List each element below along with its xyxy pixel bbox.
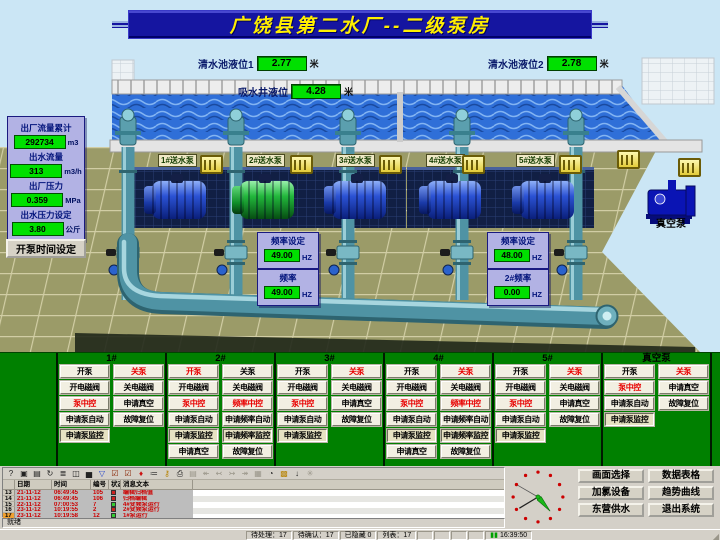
tank2-level-unit: 米 — [600, 57, 609, 70]
control-column-1#: 1#开泵关泵开电磁阀关电磁阀泵中控申请真空申请泵自动故障复位申请泵监控 — [56, 353, 165, 467]
meter-icon — [617, 150, 640, 169]
control-column-2#: 2#开泵关泵开电磁阀关电磁阀泵中控频率中控申请泵自动申请频率自动申请泵监控申请频… — [165, 353, 274, 467]
frame-icon[interactable]: ▦ — [252, 469, 264, 479]
list-icon[interactable]: ≣ — [57, 469, 69, 479]
alarm-table-header: 日期时间编号状态消息文本 — [3, 480, 504, 490]
control-column-3#: 3#开泵关泵开电磁阀关电磁阀泵中控申请真空申请泵自动故障复位申请泵监控 — [274, 353, 383, 467]
control-button-1#-申请真空[interactable]: 申请真空 — [114, 397, 163, 410]
title-text: 广饶县第二水厂--二级泵房 — [230, 11, 491, 38]
control-button-1#-关泵[interactable]: 关泵 — [114, 365, 163, 378]
control-button-2#-开电磁阀[interactable]: 开电磁阀 — [169, 381, 218, 394]
time-icon[interactable]: ◔ — [265, 469, 277, 479]
frequency-panel: 频率设定49.00HZ — [257, 232, 319, 269]
nav-button-退出系统[interactable]: 退出系统 — [648, 503, 714, 517]
nav-button-数据表格[interactable]: 数据表格 — [648, 469, 714, 483]
sort-icon[interactable]: ↓ — [291, 469, 303, 479]
control-column-header: 4# — [385, 353, 492, 365]
control-button-1#-关电磁阀[interactable]: 关电磁阀 — [114, 381, 163, 394]
control-button-5#-关泵[interactable]: 关泵 — [550, 365, 599, 378]
refresh-icon[interactable]: ↻ — [44, 469, 56, 479]
control-column-4#: 4#开泵关泵开电磁阀关电磁阀泵中控频率中控申请泵自动申请频率自动申请泵监控申请频… — [383, 353, 492, 467]
frequency-unit: HZ — [302, 290, 312, 299]
control-button-真空泵-申请真空[interactable]: 申请真空 — [659, 381, 708, 394]
control-column-header: 3# — [276, 353, 383, 365]
control-column-真空泵: 真空泵开泵关泵泵中控申请真空申请泵自动故障复位申请泵监控 — [601, 353, 712, 467]
chart-icon[interactable]: ▅ — [83, 469, 95, 479]
control-button-真空泵-关泵[interactable]: 关泵 — [659, 365, 708, 378]
alarm-toolbar: ?▣▤↻≣◫▅▽☑☑♦≔⚷⎙▤↞↢↣↠▦◔▩↓✳ — [3, 468, 504, 480]
pump-label-5: 5#送水泵 — [516, 154, 555, 167]
meter-icon — [678, 158, 701, 177]
control-button-3#-故障复位[interactable]: 故障复位 — [332, 413, 381, 426]
metric-label: 出厂流量累计 — [8, 122, 84, 134]
control-button-3#-泵中控[interactable]: 泵中控 — [278, 397, 327, 410]
control-button-5#-关电磁阀[interactable]: 关电磁阀 — [550, 381, 599, 394]
taskbar-clock: ▮▮ 16:39:50 — [485, 531, 532, 540]
alarm-widget: ?▣▤↻≣◫▅▽☑☑♦≔⚷⎙▤↞↢↣↠▦◔▩↓✳ 日期时间编号状态消息文本 13… — [2, 467, 505, 518]
control-button-2#-申请频率自动[interactable]: 申请频率自动 — [223, 413, 272, 426]
control-button-3#-开电磁阀[interactable]: 开电磁阀 — [278, 381, 327, 394]
taskbar-counter: 待确认：17 — [293, 531, 339, 540]
control-button-4#-申请泵自动[interactable]: 申请泵自动 — [387, 413, 436, 426]
log-icon[interactable]: ≔ — [148, 469, 160, 479]
second-hand — [517, 485, 538, 497]
control-button-4#-关电磁阀[interactable]: 关电磁阀 — [441, 381, 490, 394]
metric-value: 292734 — [14, 135, 66, 149]
control-button-5#-泵中控[interactable]: 泵中控 — [496, 397, 545, 410]
control-button-4#-开电磁阀[interactable]: 开电磁阀 — [387, 381, 436, 394]
network-icon: ▮▮ — [490, 532, 498, 539]
window-icon[interactable]: ▣ — [18, 469, 30, 479]
ack-icon[interactable]: ☑ — [109, 469, 121, 479]
control-button-2#-关电磁阀[interactable]: 关电磁阀 — [223, 381, 272, 394]
control-button-5#-开泵[interactable]: 开泵 — [496, 365, 545, 378]
control-button-1#-泵中控[interactable]: 泵中控 — [60, 397, 109, 410]
motor-terminal-box — [539, 174, 551, 183]
alarm-status-icon — [111, 496, 116, 501]
control-button-4#-申请频率自动[interactable]: 申请频率自动 — [441, 413, 490, 426]
pump-motor-3[interactable] — [332, 181, 386, 219]
metric-label: 出水流量 — [8, 151, 84, 163]
metric-unit: 公斤 — [66, 224, 81, 235]
control-button-2#-申请频率监控[interactable]: 申请频率监控 — [223, 429, 272, 442]
alarm-status-icon — [111, 507, 116, 512]
alarm-column-header — [3, 480, 15, 489]
well-level-label: 吸水井液位 — [238, 84, 288, 99]
control-button-真空泵-故障复位[interactable]: 故障复位 — [659, 397, 708, 410]
control-column-5#: 5#开泵关泵开电磁阀关电磁阀泵中控申请真空申请泵自动故障复位申请泵监控 — [492, 353, 601, 467]
navigation-buttons: 画面选择数据表格加氯设备趋势曲线东营供水退出系统 — [578, 469, 714, 517]
metric-unit: m3/h — [64, 167, 82, 176]
frequency-panel-title: 频率 — [258, 272, 318, 284]
control-button-4#-故障复位[interactable]: 故障复位 — [441, 445, 490, 458]
control-button-2#-泵中控[interactable]: 泵中控 — [169, 397, 218, 410]
alarm-status-icon — [111, 502, 116, 507]
frequency-panel-title: 频率设定 — [258, 235, 318, 247]
tank2-level-value: 2.78 — [547, 56, 597, 71]
control-button-5#-申请真空[interactable]: 申请真空 — [550, 397, 599, 410]
meter-icon — [462, 155, 485, 174]
tank2-level-label: 清水池液位2 — [488, 56, 544, 71]
control-column-header: 5# — [494, 353, 601, 365]
tank1-level-value: 2.77 — [257, 56, 307, 71]
lock-icon[interactable]: ▩ — [278, 469, 290, 479]
control-column-header: 1# — [58, 353, 165, 365]
taskbar: 待处理：17待确认：17已隐藏 0列表：17 ▮▮ 16:39:50 ◢ — [0, 529, 720, 540]
metric-value[interactable]: 3.80 — [12, 222, 64, 236]
metric-unit: MPa — [65, 196, 80, 205]
control-button-5#-开电磁阀[interactable]: 开电磁阀 — [496, 381, 545, 394]
minute-hand — [519, 497, 538, 508]
pin-icon[interactable]: ♦ — [135, 469, 147, 479]
frequency-panel: 2#频率0.00HZ — [487, 269, 549, 306]
control-button-1#-开电磁阀[interactable]: 开电磁阀 — [60, 381, 109, 394]
status-line: 就绪 — [2, 518, 505, 528]
control-button-3#-申请泵监控[interactable]: 申请泵监控 — [278, 429, 327, 442]
filter-icon[interactable]: ▽ — [96, 469, 108, 479]
frequency-unit: HZ — [532, 290, 542, 299]
pump-motor-2[interactable] — [240, 181, 294, 219]
metric-unit: m3 — [68, 138, 79, 147]
first-icon[interactable]: ↞ — [200, 469, 212, 479]
nav-button-画面选择[interactable]: 画面选择 — [578, 469, 644, 483]
motor-terminal-box — [171, 174, 183, 183]
frequency-unit: HZ — [532, 253, 542, 262]
control-button-4#-开泵[interactable]: 开泵 — [387, 365, 436, 378]
key-icon[interactable]: ⚷ — [161, 469, 173, 479]
page-title: 广饶县第二水厂--二级泵房 — [128, 10, 592, 39]
control-button-2#-申请真空[interactable]: 申请真空 — [169, 445, 218, 458]
control-button-3#-申请真空[interactable]: 申请真空 — [332, 397, 381, 410]
taskbar-counter: 列表：17 — [377, 531, 416, 540]
pump-label-2: 2#送水泵 — [246, 154, 285, 167]
nav-button-加氯设备[interactable]: 加氯设备 — [578, 486, 644, 500]
meter-icon — [379, 155, 402, 174]
control-button-1#-申请泵自动[interactable]: 申请泵自动 — [60, 413, 109, 426]
frequency-value: 0.00 — [494, 286, 530, 299]
nav-button-东营供水[interactable]: 东营供水 — [578, 503, 644, 517]
tank1-level: 清水池液位1 2.77 米 — [198, 56, 319, 71]
control-button-5#-故障复位[interactable]: 故障复位 — [550, 413, 599, 426]
prev-icon[interactable]: ↢ — [213, 469, 225, 479]
alarm-column-header: 时间 — [52, 480, 91, 489]
control-button-真空泵-泵中控[interactable]: 泵中控 — [605, 381, 654, 394]
meter-icon — [290, 155, 313, 174]
nav-button-趋势曲线[interactable]: 趋势曲线 — [648, 486, 714, 500]
control-button-5#-申请泵监控[interactable]: 申请泵监控 — [496, 429, 545, 442]
control-button-4#-关泵[interactable]: 关泵 — [441, 365, 490, 378]
pump-motor-1[interactable] — [152, 181, 206, 219]
pump-label-1: 1#送水泵 — [158, 154, 197, 167]
control-button-4#-申请真空[interactable]: 申请真空 — [387, 445, 436, 458]
well-level-value: 4.28 — [291, 84, 341, 99]
tank1-level-unit: 米 — [310, 57, 319, 70]
metrics-panel: 出厂流量累计292734m3出水流量313m3/h出厂压力0.359MPa出水压… — [7, 116, 85, 241]
alarm-column-header: 日期 — [15, 480, 52, 489]
control-button-1#-故障复位[interactable]: 故障复位 — [114, 413, 163, 426]
control-button-1#-开泵[interactable]: 开泵 — [60, 365, 109, 378]
control-button-2#-故障复位[interactable]: 故障复位 — [223, 445, 272, 458]
taskbar-counter: 待处理：17 — [246, 531, 292, 540]
frequency-panel-title: 2#频率 — [488, 272, 548, 284]
metric-value: 0.359 — [11, 193, 63, 207]
taskbar-counters: 待处理：17待确认：17已隐藏 0列表：17 — [246, 531, 417, 540]
wall-right — [642, 58, 714, 104]
motor-terminal-box — [446, 174, 458, 183]
control-button-4#-申请频率监控[interactable]: 申请频率监控 — [441, 429, 490, 442]
frequency-setpoint-value[interactable]: 48.00 — [494, 249, 530, 262]
control-button-3#-关泵[interactable]: 关泵 — [332, 365, 381, 378]
control-button-真空泵-申请泵自动[interactable]: 申请泵自动 — [605, 397, 654, 410]
pump-motor-5[interactable] — [520, 181, 574, 219]
motor-terminal-box — [351, 174, 363, 183]
control-button-2#-申请泵自动[interactable]: 申请泵自动 — [169, 413, 218, 426]
control-button-5#-申请泵自动[interactable]: 申请泵自动 — [496, 413, 545, 426]
pump-label-3: 3#送水泵 — [336, 154, 375, 167]
metric-label: 出厂压力 — [8, 180, 84, 192]
ack-all-icon[interactable]: ☑ — [122, 469, 134, 479]
misc-icon[interactable]: ✳ — [304, 469, 316, 479]
control-button-1#-申请泵监控[interactable]: 申请泵监控 — [60, 429, 109, 442]
analog-clock — [506, 468, 570, 526]
vacuum-pump-label: 真空泵 — [644, 215, 698, 230]
pump-label-4: 4#送水泵 — [426, 154, 465, 167]
meter-icon — [559, 155, 582, 174]
control-column-header: 2# — [167, 353, 274, 365]
status-area: ?▣▤↻≣◫▅▽☑☑♦≔⚷⎙▤↞↢↣↠▦◔▩↓✳ 日期时间编号状态消息文本 13… — [0, 466, 720, 540]
alarm-status-icon — [111, 490, 116, 495]
frequency-value: 49.00 — [264, 286, 300, 299]
next-icon[interactable]: ↣ — [226, 469, 238, 479]
metric-value: 313 — [10, 164, 62, 178]
well-level-unit: 米 — [344, 85, 353, 98]
help-icon[interactable]: ? — [5, 469, 17, 479]
control-button-4#-频率中控[interactable]: 频率中控 — [441, 397, 490, 410]
meter-icon — [200, 155, 223, 174]
control-button-真空泵-申请泵监控[interactable]: 申请泵监控 — [605, 413, 654, 426]
suction-well-level: 吸水井液位 4.28 米 — [238, 84, 353, 99]
hmi-screen: 广饶县第二水厂--二级泵房 清水池液位1 2.77 米 清水池液位2 2.78 … — [0, 0, 720, 540]
taskbar-counter: 已隐藏 0 — [340, 531, 377, 540]
alarm-table-rows: 1321-11-1206:49:45105编辑归档值1421-11-1206:4… — [3, 490, 504, 519]
motor-terminal-box — [259, 174, 271, 183]
alarm-column-header: 编号 — [91, 480, 109, 489]
export-icon[interactable]: ▤ — [187, 469, 199, 479]
control-button-2#-关泵[interactable]: 关泵 — [223, 365, 272, 378]
control-button-2#-开泵[interactable]: 开泵 — [169, 365, 218, 378]
control-button-真空泵-开泵[interactable]: 开泵 — [605, 365, 654, 378]
alarm-column-header: 状态 — [109, 480, 121, 489]
metric-label: 出水压力设定 — [8, 209, 84, 221]
frequency-unit: HZ — [302, 253, 312, 262]
archive-icon[interactable]: ◫ — [70, 469, 82, 479]
frequency-panel: 频率设定48.00HZ — [487, 232, 549, 269]
resize-grip[interactable]: ◢ — [713, 532, 719, 540]
control-button-2#-申请泵监控[interactable]: 申请泵监控 — [169, 429, 218, 442]
clear-water-tanks — [110, 80, 702, 152]
notes-icon[interactable]: ▤ — [31, 469, 43, 479]
tank2-level: 清水池液位2 2.78 米 — [488, 56, 609, 71]
wall-left — [112, 60, 134, 82]
control-button-3#-申请泵自动[interactable]: 申请泵自动 — [278, 413, 327, 426]
last-icon[interactable]: ↠ — [239, 469, 251, 479]
control-button-4#-申请泵监控[interactable]: 申请泵监控 — [387, 429, 436, 442]
pump-control-panel: 1#开泵关泵开电磁阀关电磁阀泵中控申请真空申请泵自动故障复位申请泵监控2#开泵关… — [0, 352, 720, 466]
tank1-level-label: 清水池液位1 — [198, 56, 254, 71]
tank-divider — [397, 92, 403, 142]
control-column-header: 真空泵 — [603, 353, 710, 365]
control-button-2#-频率中控[interactable]: 频率中控 — [223, 397, 272, 410]
pump-motor-4[interactable] — [427, 181, 481, 219]
alarm-column-header: 消息文本 — [121, 480, 193, 489]
control-button-4#-泵中控[interactable]: 泵中控 — [387, 397, 436, 410]
frequency-panel-title: 频率设定 — [488, 235, 548, 247]
frequency-setpoint-value[interactable]: 49.00 — [264, 249, 300, 262]
print-icon[interactable]: ⎙ — [174, 469, 186, 479]
control-button-3#-开泵[interactable]: 开泵 — [278, 365, 327, 378]
control-button-3#-关电磁阀[interactable]: 关电磁阀 — [332, 381, 381, 394]
pump-time-setting-button[interactable]: 开泵时间设定 — [6, 239, 86, 258]
frequency-panel: 频率49.00HZ — [257, 269, 319, 306]
taskbar-time: 16:39:50 — [500, 532, 527, 539]
